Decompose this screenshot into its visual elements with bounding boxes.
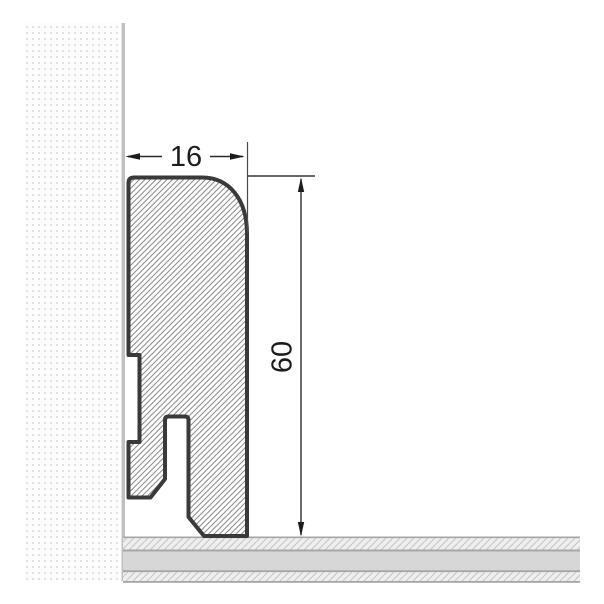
wall-texture — [25, 23, 120, 581]
floor-layer-solid — [123, 552, 580, 571]
floor-separator-line-1 — [123, 550, 580, 552]
floor-layer-top-hatch — [123, 538, 580, 549]
height-dim-arrow-top — [298, 178, 304, 193]
technical-diagram-canvas: 16 60 — [0, 0, 604, 604]
height-dimension: 60 — [248, 176, 315, 537]
wall-surface-line — [122, 23, 126, 581]
floor-bottom-line — [123, 581, 580, 583]
floor-separator-line-2 — [123, 570, 580, 572]
floor-top-line — [123, 537, 580, 539]
height-dimension-label: 60 — [267, 341, 299, 373]
floor-layer-bottom-hatch — [123, 572, 580, 581]
skirting-profile-diagram: 16 60 — [0, 0, 604, 604]
width-dim-arrow-right — [230, 153, 245, 160]
width-dim-arrow-left — [126, 153, 141, 160]
width-dimension-label: 16 — [170, 141, 202, 173]
floor — [123, 537, 580, 583]
skirting-profile-outline — [129, 178, 248, 537]
height-dim-arrow-bottom — [298, 522, 304, 537]
